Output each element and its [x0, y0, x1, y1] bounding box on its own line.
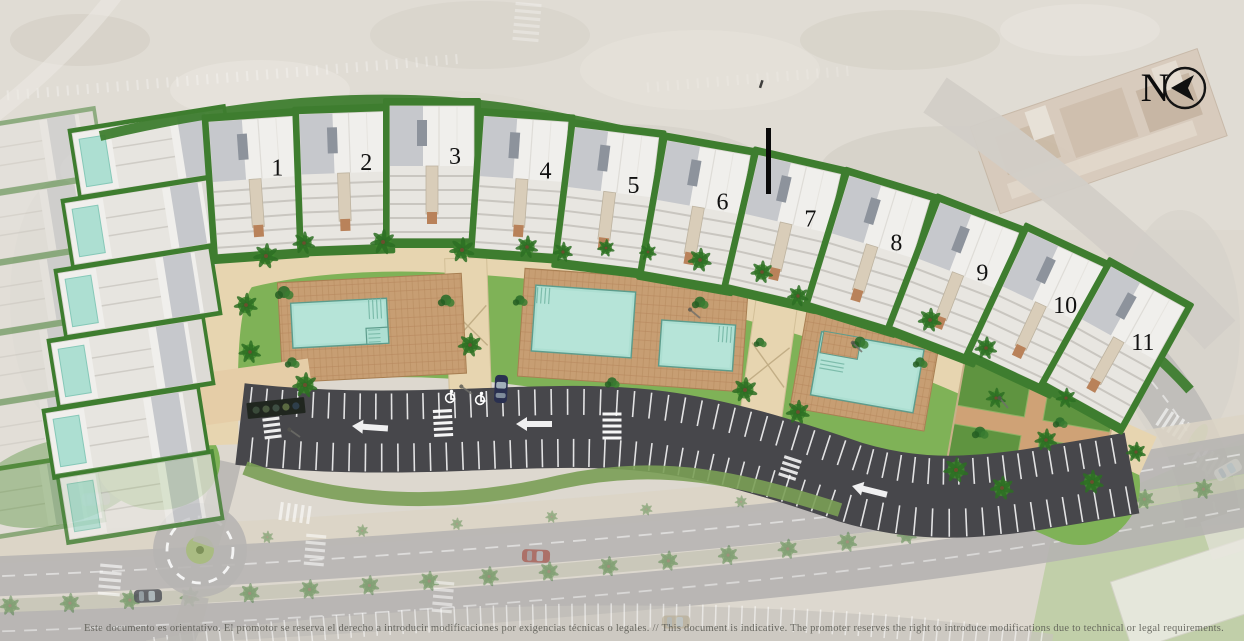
unit-number-label: 3 — [449, 144, 461, 170]
unit-number-label: 1 — [271, 155, 283, 181]
unit-number-label: 7 — [804, 207, 816, 233]
unit-house: 2 — [292, 103, 395, 256]
unit-number-label: 6 — [716, 189, 728, 215]
car — [494, 375, 508, 404]
unit-number-label: 11 — [1131, 330, 1154, 356]
unit-number-label: 9 — [976, 261, 988, 287]
unit-number-label: 4 — [539, 159, 551, 185]
unit-number-label: 8 — [890, 231, 902, 257]
site-plan-svg: 1234567891011N — [0, 0, 1244, 641]
disclaimer-text: Este documento es orientativo. El promot… — [84, 623, 1224, 634]
unit-number-label: 2 — [360, 150, 372, 176]
car — [522, 549, 550, 563]
unit-house: 3 — [383, 98, 481, 248]
car — [134, 589, 162, 603]
unit-number-label: 5 — [628, 173, 640, 199]
unit-number-label: 10 — [1053, 293, 1077, 319]
site-plan: 1234567891011N Este documento es orienta… — [0, 0, 1244, 641]
